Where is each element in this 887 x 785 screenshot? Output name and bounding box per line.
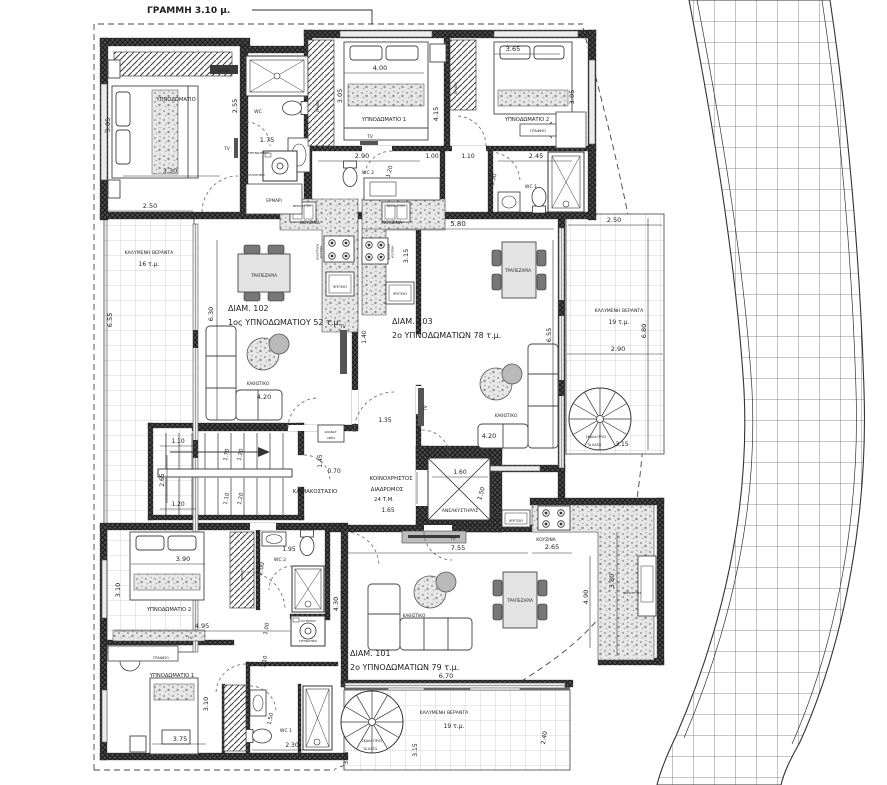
- dim-label: 1.95: [282, 546, 296, 553]
- apt-name: ΔΙΑΜ. 102: [228, 304, 269, 313]
- area-label: ΚΟΥΖΙΝΑ: [382, 220, 402, 226]
- tv-label: TV: [450, 536, 456, 541]
- room-label: 24 Τ.Μ.: [374, 497, 394, 503]
- stair-label: ΣΚΑΛΑ ΠΡΟΣ: [586, 435, 607, 439]
- dim-label: 3.15: [412, 743, 419, 757]
- dim-label: 1.20: [386, 165, 395, 179]
- dim-label: 2.65: [545, 543, 559, 551]
- room-label: ΥΠΝΟΔΩΜΑΤΙΟ: [155, 97, 195, 103]
- dim-label: 3.65: [506, 45, 520, 53]
- furn-label: ΤΡΑΠΕΖΑΡΙΑ: [504, 268, 531, 273]
- floor-plan: ΓΡΑΜΜΗ 3.10 μ.ΕΡΜΑΡΙ3.05ΥΠΝΟΔΩΜΑΤΙΟTV3.3…: [0, 0, 887, 785]
- fixture-label: ΑΝΑΒΑΤ.: [324, 430, 337, 434]
- road: [657, 0, 864, 785]
- area-label: 19 τ.μ.: [444, 723, 465, 730]
- dim-label: 1.70: [223, 448, 231, 462]
- closet-label: ΕΡΜΑΡΙ: [266, 198, 281, 203]
- dim-label: 2.55: [231, 99, 239, 113]
- fixture-label: ΨΥΓΕΙΟ: [393, 291, 407, 296]
- room-label: WC 2: [362, 170, 374, 176]
- fixture-label: ΝΕΡΟΧΥΤΗΣ: [387, 204, 405, 208]
- dim-label: 3.55: [343, 751, 350, 765]
- dim-label: 6.80: [640, 324, 648, 338]
- closet-label: ΕΡΜΑΡΙ: [240, 569, 244, 580]
- dim-label: 3.10: [114, 583, 122, 597]
- dim-label: 1.10: [223, 492, 231, 506]
- dim-label: 1.35: [378, 417, 392, 424]
- room-label: ΚΛΙΜΑΚΟΣΤΑΣΙΟ: [293, 489, 338, 495]
- area-label: ΚΑΛΥΜΕΝΗ ΒΕΡΑΝΤΑ: [125, 250, 175, 256]
- room-label: ΥΠΝΟΔΩΜΑΤΙΟ 2: [146, 607, 191, 613]
- dim-label: 2.30: [285, 742, 299, 749]
- stair-label: ΣΚΑΛΑ ΠΡΟΣ: [362, 739, 383, 743]
- dim-label: 1.65: [381, 507, 395, 514]
- dim-label: 1.00: [425, 153, 439, 160]
- dim-label: 1.50: [267, 712, 275, 726]
- fixture-label: ΝΕΡΟΧΥΤΗΣ: [623, 591, 641, 595]
- fixture-label: ΣΤΕΓΝΩΤΗΡΙΟ: [248, 151, 270, 155]
- toilet: [532, 188, 546, 214]
- closet-label: ΕΡΜΑΡΙ: [316, 100, 320, 112]
- note-grammi: ΓΡΑΜΜΗ 3.10 μ.: [147, 6, 230, 16]
- tv-label: TV: [223, 146, 230, 151]
- fixture-label: ΑΜΕΑ: [327, 436, 337, 440]
- dim-label: 4.20: [482, 432, 496, 440]
- dim-label: 3.75: [173, 735, 187, 743]
- dim-label: 2.65: [159, 473, 166, 487]
- plant-icon: [414, 572, 456, 608]
- stair-label: ΤΑ ΚΑΤΩ: [586, 443, 601, 447]
- floor-plan-svg: ΓΡΑΜΜΗ 3.10 μ.ΕΡΜΑΡΙ3.05ΥΠΝΟΔΩΜΑΤΙΟTV3.3…: [0, 0, 887, 785]
- toilet: [300, 530, 314, 556]
- furn-label: ΚΑΘΙΣΤΙΚΟ: [403, 613, 426, 618]
- dim-label: 1.10: [261, 655, 269, 669]
- room-label: WC 2: [274, 557, 286, 563]
- toilet: [246, 729, 272, 743]
- dim-label: 2.90: [355, 152, 369, 160]
- apt-name: ΔΙΑΜ. 103: [392, 317, 433, 326]
- dim-label: 2.45: [529, 152, 543, 160]
- area-label: ΚΟΥΖΙΝΑ: [300, 220, 320, 226]
- room-label: ΥΠΝΟΔΩΜΑΤΙΟ 2: [504, 117, 549, 123]
- tv-label: TV: [187, 635, 193, 640]
- dim-label: 1.75: [260, 136, 274, 144]
- washing-machine: [263, 151, 297, 181]
- room-label: ΔΙΑΔΡΟΜΟΣ: [371, 487, 404, 493]
- furn-label: ΚΑΘΙΣΤΙΚΟ: [495, 413, 518, 418]
- dim-label: 3.15: [402, 249, 410, 263]
- tv-label: TV: [423, 405, 428, 411]
- room-label: WC: [254, 109, 262, 115]
- dim-label: 2.50: [607, 216, 621, 224]
- room-label: WC 1: [280, 728, 292, 734]
- dim-label: 7.55: [451, 544, 465, 552]
- fixture-label: ΨΥΓΕΙΟ: [509, 518, 523, 523]
- room-label: ΚΟΙΝΟΧΡΗΣΤΟΣ: [370, 476, 414, 482]
- dim-label: 4.20: [257, 393, 271, 401]
- dim-label: 4.90: [582, 590, 590, 604]
- fixture-label: ΠΛΥΝΤΗΡΙΟ: [247, 173, 265, 177]
- plant-icon: [247, 334, 289, 370]
- stair-label: ΤΑ ΚΑΤΩ: [362, 747, 377, 751]
- dim-label: 6.55: [106, 313, 114, 327]
- dim-label: 1.00: [263, 622, 271, 636]
- dim-label: 3.80: [608, 574, 616, 588]
- fixture-label: ΚΟΥΖΙΝΑ: [319, 246, 323, 259]
- toilet: [343, 161, 357, 187]
- apt-type: 1ος ΥΠΝΟΔΩΜΑΤΙΟΥ 52 τ.μ.: [228, 318, 341, 327]
- dim-label: 3.05: [336, 89, 344, 103]
- dim-label: 6.70: [439, 672, 453, 680]
- dim-label: 0.70: [327, 468, 341, 475]
- dim-label: 4.30: [332, 597, 340, 611]
- tv-label: TV: [366, 134, 373, 139]
- dim-label: 1.40: [361, 330, 368, 344]
- furn-label: ΚΑΘΙΣΤΙΚΟ: [247, 381, 270, 386]
- dim-label: 2.00: [257, 561, 266, 576]
- room-label: ΑΝΕΛΚΥΣΤΗΡΑΣ: [442, 508, 479, 514]
- dim-label: 1.45: [317, 454, 324, 468]
- toilet: [283, 101, 309, 115]
- dim-label: 2.50: [143, 202, 157, 210]
- area-label: ΚΑΛΥΜΕΝΗ ΒΕΡΑΝΤΑ: [595, 308, 645, 314]
- fixture-label: ΨΥΓΕΙΟ: [333, 284, 347, 289]
- fixture-label: ΝΕΡΟΧΥΤΗΣ: [293, 204, 311, 208]
- road-surface: [657, 0, 864, 785]
- dim-label: 3.90: [176, 555, 190, 563]
- furn-label: ΤΡΑΠΕΖΑΡΙΑ: [250, 273, 277, 278]
- stair-direction-arrow: [258, 447, 270, 457]
- closet-label: ΕΡΜΑΡΙ: [218, 69, 230, 73]
- area-label: ΚΑΛΥΜΕΝΗ ΒΕΡΑΝΤΑ: [420, 710, 470, 716]
- dim-label: 4.15: [432, 107, 440, 121]
- apt-name: ΔΙΑΜ. 101: [350, 649, 391, 658]
- room-label: WC 1: [525, 184, 537, 190]
- room-label: ΥΠΝΟΔΩΜΑΤΙΟ 1: [149, 673, 194, 679]
- fixture-label: ΣΤΕΓΝΩΤΗΡΙΟ: [299, 639, 317, 643]
- dim-label: 4.95: [195, 622, 209, 630]
- dim-label: 4.00: [373, 64, 387, 72]
- dim-label: 3.15: [615, 441, 629, 448]
- area-label: 16 τ.μ.: [139, 261, 160, 268]
- room-label: ΥΠΝΟΔΩΜΑΤΙΟ 1: [361, 117, 406, 123]
- dim-label: 3.05: [104, 118, 112, 132]
- dim-label: 6.30: [207, 307, 215, 321]
- dim-label: 1.10: [171, 438, 185, 445]
- apt-type: 2ο ΥΠΝΟΔΩΜΑΤΙΩΝ 79 τ.μ.: [350, 663, 459, 672]
- dim-label: 6.55: [545, 328, 553, 342]
- dim-label: 3.10: [202, 697, 210, 711]
- plant-icon: [480, 364, 522, 400]
- dim-label: 3.30: [163, 167, 177, 175]
- dim-label: 2.90: [611, 345, 625, 353]
- spiral-stair-icon: [341, 691, 403, 753]
- furn-label: ΤΡΑΠΕΖΑΡΙΑ: [506, 598, 533, 603]
- fixture-label: ΠΛΥΝΤΗΡΙΟ: [300, 619, 315, 623]
- dim-label: 3.05: [568, 90, 576, 104]
- dim-label: 1.20: [171, 501, 185, 508]
- area-label: 19 τ.μ.: [609, 319, 630, 326]
- closet-label: ΕΡΜΑΡΙ: [454, 82, 458, 94]
- fixture-label: ΚΟΥΖΙΝΑ: [391, 246, 395, 259]
- tv-label: TV: [339, 324, 345, 329]
- dim-label: 1.10: [461, 153, 475, 160]
- desk-label: ΓΡΑΦΕΙΟ: [153, 656, 169, 660]
- dim-label: 1.60: [453, 469, 467, 476]
- dim-label: 5.80: [450, 220, 466, 228]
- desk-label: ΓΡΑΦΕΙΟ: [530, 129, 546, 133]
- apt-type: 2ο ΥΠΝΟΔΩΜΑΤΙΩΝ 78 τ.μ.: [392, 331, 501, 340]
